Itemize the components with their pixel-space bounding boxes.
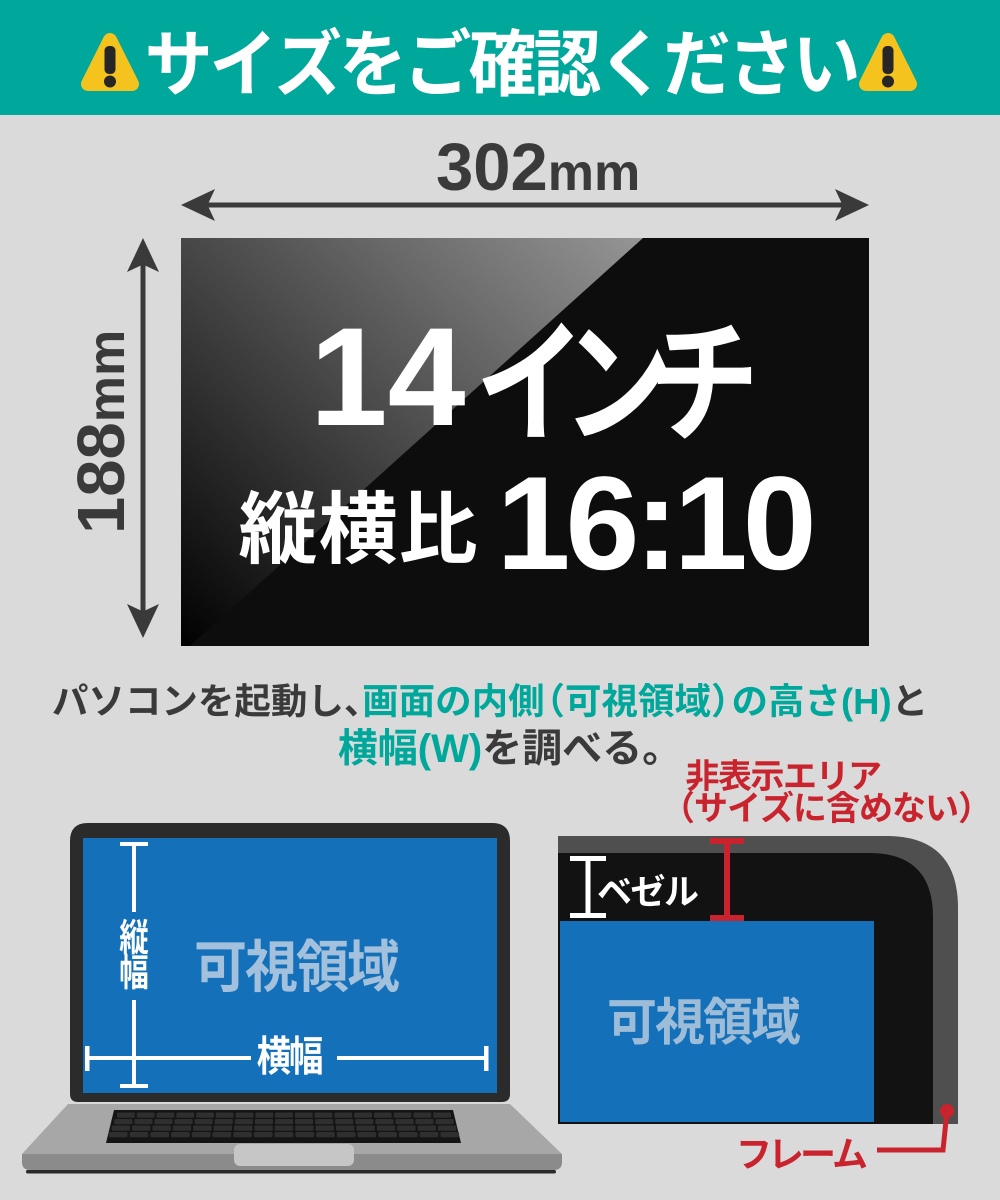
svg-text:16:10: 16:10 [497,450,812,598]
svg-text:14: 14 [310,298,466,455]
svg-text:(W): (W) [418,727,482,771]
svg-text:(H): (H) [841,681,892,722]
